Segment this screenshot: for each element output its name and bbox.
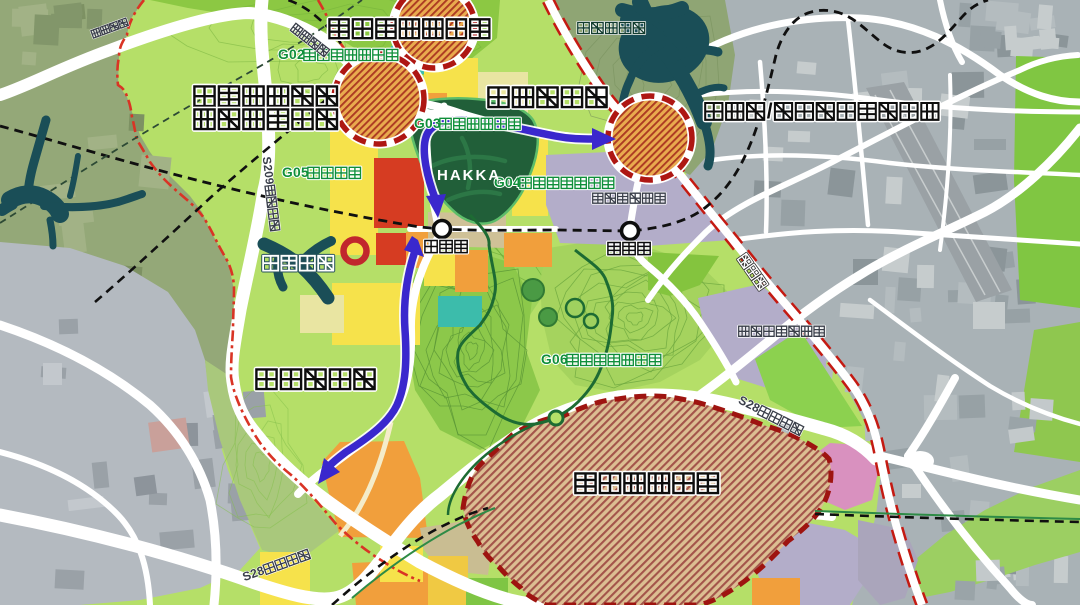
svg-text:G05: G05 xyxy=(282,165,309,180)
svg-text:G06: G06 xyxy=(541,352,568,367)
svg-text:/: / xyxy=(767,100,773,123)
svg-text:G03: G03 xyxy=(414,116,441,131)
svg-text:G02: G02 xyxy=(278,47,305,62)
svg-text:HAKKA: HAKKA xyxy=(437,167,501,184)
